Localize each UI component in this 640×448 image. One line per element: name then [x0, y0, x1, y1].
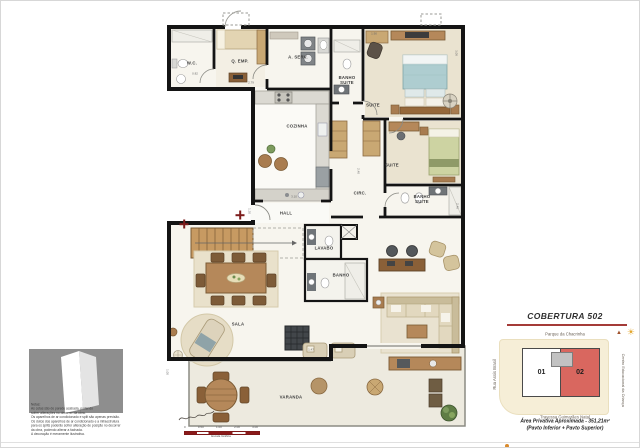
area-text-line2: (Pavto Inferior + Pavto Superior): [490, 425, 640, 432]
scalebar-ticks: 00.501.002.003.00: [184, 426, 258, 429]
keyplan-map: 01 02: [499, 339, 609, 415]
lavabo-banho-block: [305, 225, 367, 301]
scalebar-tick: 2.00: [234, 426, 240, 429]
scalebar-tick: 3.00: [252, 426, 258, 429]
north-arrow-icon: ▲: [616, 330, 622, 336]
scalebar-tick: 1.00: [216, 426, 222, 429]
key-plan: COBERTURA 502 ▲ ☀ Parque da Chacrinha Ru…: [489, 307, 640, 448]
ac-unit-box-right: [421, 14, 441, 25]
scale-bar: 00.501.002.003.00 Escala Gráfica: [184, 426, 258, 440]
street-label-left: Rua Assis Brasil: [493, 357, 497, 393]
brochure-page: W.C.Q. EMP.A. SERV.BANHO SUITECOZINHASUI…: [0, 0, 640, 448]
building-core: [551, 352, 573, 367]
street-label-top: Parque da Chacrinha: [545, 332, 585, 336]
street-label-right: Centro Educacional da Criança: [621, 354, 625, 396]
sun-icon: ☀: [627, 328, 635, 337]
dining-set: [194, 251, 278, 307]
scalebar-tick: 0: [184, 426, 186, 429]
notes-block: Notas:As cotas são de parede acabada, po…: [31, 403, 146, 437]
map-poi-dot: [505, 444, 509, 448]
note-line: A decoração é meramente ilustrativa.: [31, 433, 146, 437]
area-text-line1: Área Privativa Aproximada - 351,21m²: [490, 418, 640, 425]
scalebar-tick: 0.50: [198, 426, 204, 429]
keyplan-title-underline: [507, 324, 627, 327]
scalebar-label: Escala Gráfica: [184, 435, 258, 438]
area-text: Área Privativa Aproximada - 351,21m² (Pa…: [490, 418, 640, 432]
building-outline: 01 02: [522, 348, 600, 397]
keyplan-title: COBERTURA 502: [489, 311, 640, 321]
hall-floor: [255, 203, 329, 223]
entrance-gap: [251, 205, 256, 220]
